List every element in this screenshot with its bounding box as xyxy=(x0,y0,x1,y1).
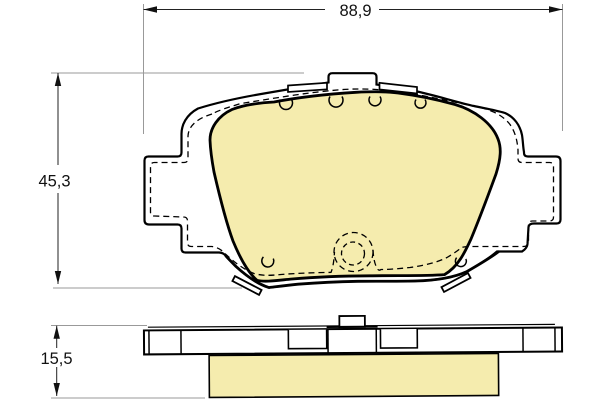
svg-text:45,3: 45,3 xyxy=(38,173,70,191)
svg-text:88,9: 88,9 xyxy=(339,2,371,20)
svg-text:15,5: 15,5 xyxy=(40,350,72,368)
